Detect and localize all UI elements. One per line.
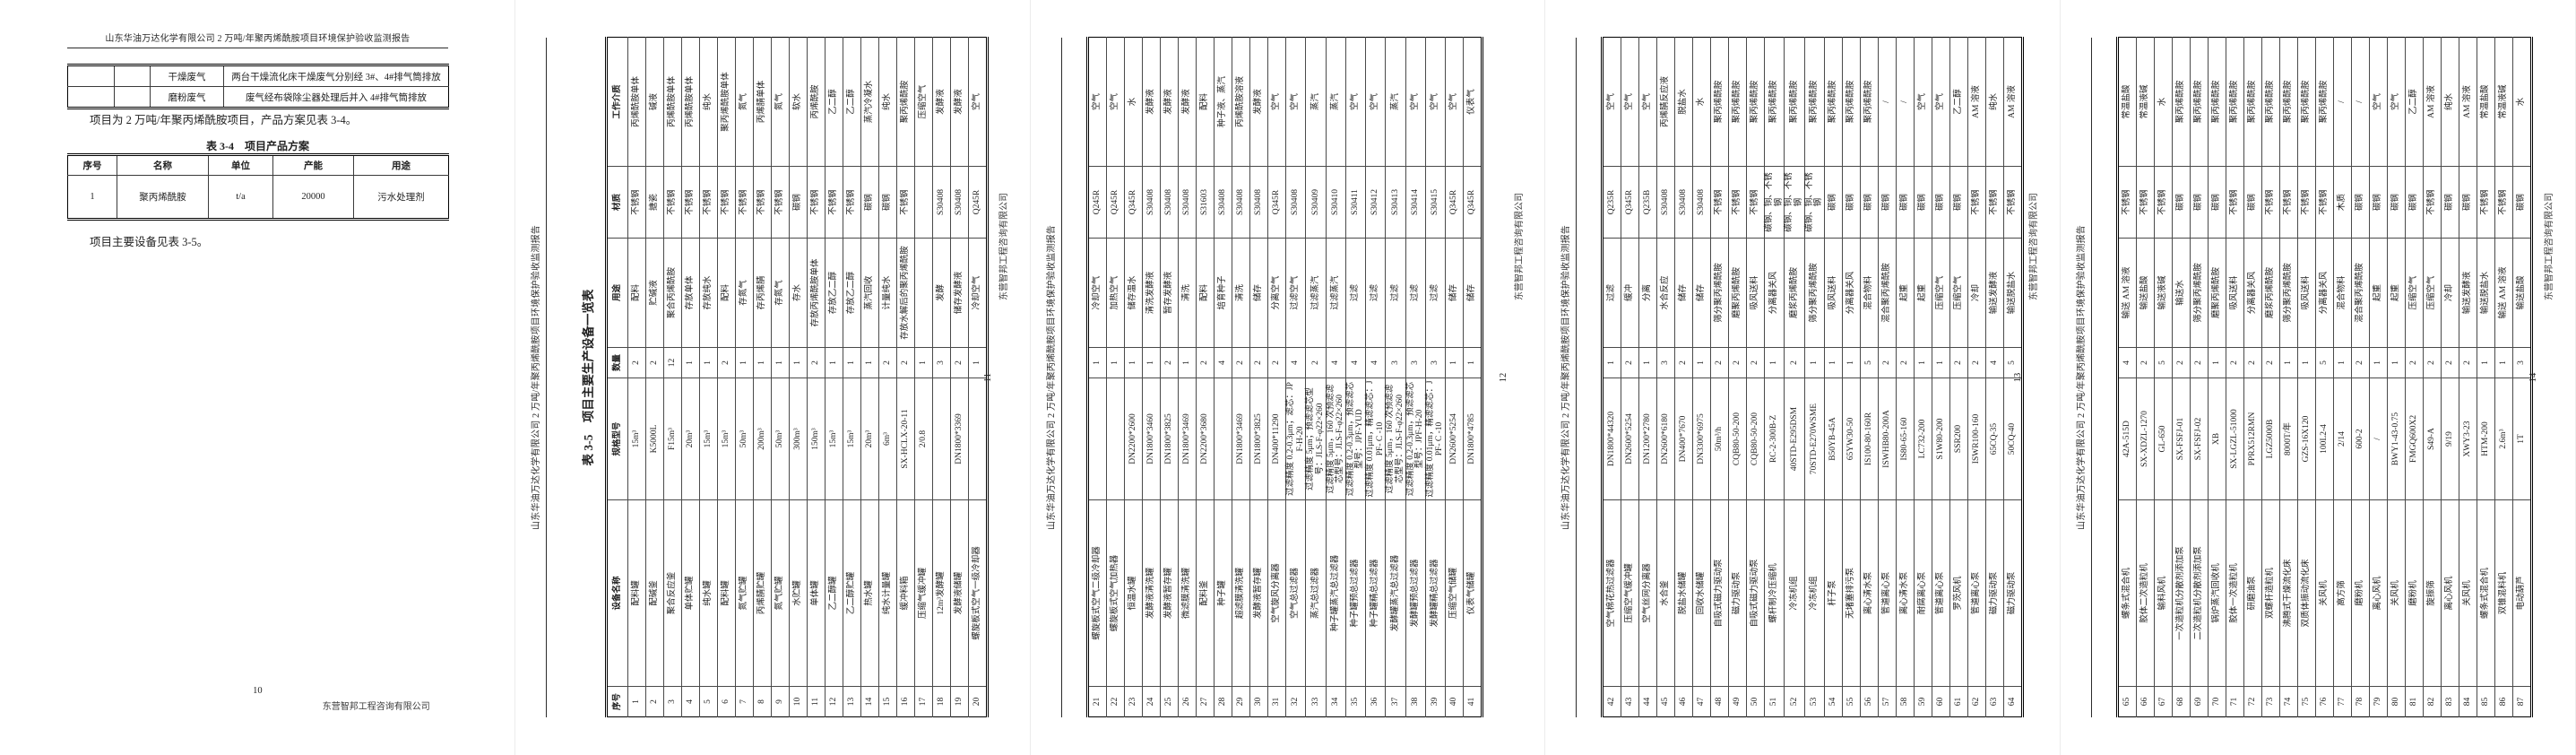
table-cell: 缓冲料箱: [896, 500, 914, 687]
table-cell: 碳钢: [878, 167, 896, 239]
table-cell: 乙二醇: [1950, 38, 1968, 167]
table-cell: 无堵塞排污泵: [1843, 500, 1861, 687]
table-cell: 1: [1639, 348, 1657, 378]
table-cell: 聚丙烯酰胺: [1785, 38, 1804, 167]
table-cell: 不锈钢: [771, 167, 789, 239]
table-cell: 单体贮罐: [681, 500, 699, 687]
table-cell: 2: [2442, 348, 2459, 378]
table-cell: 200m³: [753, 378, 771, 500]
table-cell: 空气: [1621, 38, 1639, 167]
table-cell: 两台干燥流化床干燥废气分别经 3#、4#排气筒排放: [224, 65, 449, 87]
table-row: 24发酵液清洗罐DN1800*34601清洗发酵液S30408发酵液: [1142, 38, 1160, 717]
table-cell: 74: [2280, 687, 2298, 717]
table-cell: 57: [1879, 687, 1897, 717]
table-cell: S30415: [1425, 167, 1445, 239]
table-cell: 丙烯酰胺: [807, 38, 825, 167]
table-cell: 空气: [1106, 38, 1124, 167]
table-cell: 空气: [2388, 38, 2406, 167]
table-cell: S30408: [1232, 167, 1249, 239]
table-cell: 37: [1385, 687, 1405, 717]
table-cell: 不锈钢: [2477, 167, 2495, 239]
table-cell: 15m³: [717, 378, 735, 500]
table-row: 4单体贮罐20m³1存放单体不锈钢丙烯酰胺单体: [681, 38, 699, 717]
table-row: 57管道离心泵ISWHB80-200A2混合聚丙烯酰胺碳钢/: [1879, 38, 1897, 717]
table-cell: 离心清水泵: [1897, 500, 1915, 687]
table-cell: 75: [2298, 687, 2316, 717]
table-cell: 氮气贮罐: [771, 500, 789, 687]
table-cell: 5: [2155, 348, 2173, 378]
table-cell: CQB80-50-200: [1747, 378, 1765, 500]
table-cell: 16: [896, 687, 914, 717]
table-cell: 不锈钢: [1711, 167, 1729, 239]
table-row: 66胶体二次造粒机SX-XDZL-12702输送盐酸不锈钢常温液碱: [2137, 38, 2155, 717]
table-cell: DN1800*3460: [1142, 378, 1160, 500]
table-cell: 存放水解后的聚丙烯酰胺: [896, 239, 914, 348]
table-row: 79离心风机/1起重碳钢空气: [2370, 38, 2388, 717]
table-row: 42空气棉花热过滤器DN1800*443201过滤Q235R空气: [1603, 38, 1621, 717]
table-cell: DN1800*3469: [1178, 378, 1196, 500]
table-row: 34种子罐蒸汽总过滤器过滤精度 5μm，160 次预滤滤芯型号：JLS-F-φ2…: [1326, 38, 1345, 717]
table-cell: 45: [1657, 687, 1675, 717]
consultant-company: 东营智邦工程咨询有限公司: [2541, 193, 2554, 300]
table-cell: GL-650: [2155, 378, 2173, 500]
table-row: 84关风机XWY3-232输送发酵液碳钢AM 溶液: [2459, 38, 2477, 717]
table-cell: PPRX512RMN: [2244, 378, 2262, 500]
table-cell: 发酵: [932, 239, 950, 348]
table-cell: S30408: [1160, 167, 1178, 239]
table-row: 1配料罐15m³2配料不锈钢丙烯酰胺单体: [627, 38, 645, 717]
table-cell: 碳钢: [2244, 167, 2262, 239]
table-row: 3聚合反应釜F15m³12聚合丙烯酰胺不锈钢丙烯酰胺单体: [663, 38, 681, 717]
table-cell: 碳钢: [1950, 167, 1968, 239]
table-cell: Q345R: [1463, 167, 1482, 239]
table-cell: 存放纯水: [699, 239, 717, 348]
table-cell: 24: [1142, 687, 1160, 717]
table-cell: 碳钢: [1932, 167, 1950, 239]
table-cell: 1: [771, 348, 789, 378]
table-cell: 缓冲: [1621, 239, 1639, 348]
table-cell: 蒸汽总过滤器: [1305, 500, 1325, 687]
table-cell: 螺旋板式空气二级冷却器: [1087, 500, 1106, 687]
table-cell: Q345R: [1124, 167, 1142, 239]
table-cell: 2: [1305, 348, 1325, 378]
table-cell: 1: [2495, 348, 2513, 378]
table-cell: 不锈钢: [2262, 167, 2280, 239]
table-cell: 2/14: [2334, 378, 2352, 500]
table-cell: 过滤精度 5μm，160 次预滤滤芯型号：JLS-F-φ22×260: [1326, 378, 1345, 500]
table-cell: DN1800*3825: [1160, 378, 1178, 500]
table-cell: 压缩空气: [1950, 239, 1968, 348]
table-cell: 常温盐酸: [2118, 38, 2137, 167]
table-cell: 发酵液清洗罐: [1142, 500, 1160, 687]
table-cell: 丙烯酰胺单体: [627, 38, 645, 167]
page-number: 12: [1498, 0, 1508, 755]
table-cell: 暂存发酵液: [1160, 239, 1178, 348]
table-cell: XWY3-23: [2459, 378, 2477, 500]
table-cell: 螺条式混合机: [2477, 500, 2495, 687]
table-cell: 3: [1405, 348, 1425, 378]
table-cell: 杆子泵: [1825, 500, 1843, 687]
table-cell: 2: [2406, 348, 2424, 378]
table-cell: 输料风机: [2155, 500, 2173, 687]
table-cell: 5: [1861, 348, 1879, 378]
table-cell: 1: [1825, 348, 1843, 378]
table-cell: 1: [627, 687, 645, 717]
table-row: 73双螺杆造粒机LGZ5000B2磨浆丙烯酰胺不锈钢聚丙烯酰胺: [2262, 38, 2280, 717]
table-cell: 10: [789, 687, 807, 717]
table-cell: 47: [1693, 687, 1711, 717]
table-cell: 氮气: [735, 38, 753, 167]
table-row: 86双锥混料机2.6m³1输送 AM 溶液不锈钢常温液碱: [2495, 38, 2513, 717]
table-cell: 聚丙烯酰胺: [2280, 38, 2298, 167]
table-cell: 混合物料: [1861, 239, 1879, 348]
table-cell: 1: [681, 348, 699, 378]
table-cell: 恒温水罐: [1124, 500, 1142, 687]
table-cell: 水: [1124, 38, 1142, 167]
table-cell: DN2600*5254: [1621, 378, 1639, 500]
table-cell: 空气: [1445, 38, 1463, 167]
table-cell: 70: [2209, 687, 2226, 717]
table-cell: 4: [1345, 348, 1365, 378]
table-cell: 不锈钢: [1986, 167, 2004, 239]
table-cell: 2: [1711, 348, 1729, 378]
table-cell: 碳钢、铜、不锈钢: [1785, 167, 1804, 239]
table-cell: XB: [2209, 378, 2226, 500]
table-row: 43压缩空气缓冲罐DN2600*52542缓冲Q345R空气: [1621, 38, 1639, 717]
table-cell: 62: [1968, 687, 1986, 717]
table-row: 39发酵罐精总过滤器过滤精度 0.01μm，精滤滤芯：JPF- C -103过滤…: [1425, 38, 1445, 717]
table-row: 干燥废气两台干燥流化床干燥废气分别经 3#、4#排气筒排放: [68, 65, 449, 87]
table-cell: HTM-200: [2477, 378, 2495, 500]
report-header: 山东华油万达化学有限公司 2 万吨/年聚丙烯酰胺项目环境保护验收监测报告: [1558, 38, 1577, 717]
table-cell: 3: [1657, 348, 1675, 378]
table-cell: 高方筛: [2334, 500, 2352, 687]
table-cell: 存放乙二醇: [825, 239, 843, 348]
table-cell: 29: [1232, 687, 1249, 717]
table-cell: 6m³: [878, 378, 896, 500]
table-cell: 冷却: [1968, 239, 1986, 348]
table-cell: 59: [1915, 687, 1932, 717]
table-cell: AM 溶液: [1968, 38, 1986, 167]
table-cell: 纯水: [699, 38, 717, 167]
table-cell: 38: [1405, 687, 1425, 717]
table-cell: S49-A: [2424, 378, 2442, 500]
table-cell: 7: [735, 687, 753, 717]
table-cell: 碳钢: [2388, 167, 2406, 239]
table-cell: 不锈钢: [2155, 167, 2173, 239]
table-cell: [1214, 378, 1232, 500]
table-cell: S31603: [1196, 167, 1214, 239]
table-cell: 水: [2155, 38, 2173, 167]
column-header: 单位: [209, 155, 273, 176]
column-header: 用途: [354, 155, 449, 176]
table-cell: 1: [753, 348, 771, 378]
table-cell: 不锈钢: [2137, 167, 2155, 239]
table-cell: 过滤精度 5μm；预滤滤芯型号：JLS-F-φ22×260: [1305, 378, 1325, 500]
table-cell: FMGQ600X2: [2406, 378, 2424, 500]
column-header: 工作介质: [606, 38, 627, 167]
table-cell: 压缩空气: [2406, 239, 2424, 348]
table-row: 59耐腐离心泵LC732-2001起重碳钢空气: [1915, 38, 1932, 717]
table-cell: 丙烯酰胺单体: [663, 38, 681, 167]
table-cell: [1106, 378, 1124, 500]
table-cell: 储存: [1445, 239, 1463, 348]
table-cell: 空气: [2370, 38, 2388, 167]
table-row: 77高方筛2/141混合物料木质/: [2334, 38, 2352, 717]
table-cell: 不锈钢: [2280, 167, 2298, 239]
table-cell: 1: [1445, 348, 1463, 378]
consultant-company: 东营智邦工程咨询有限公司: [1510, 193, 1524, 300]
table-cell: 分离空气: [1267, 239, 1285, 348]
table-row: 78磨粉机600-22混合聚丙烯酰胺碳钢/: [2352, 38, 2370, 717]
table-cell: 52: [1785, 687, 1804, 717]
table-row: 25发酵液暂存罐DN1800*38252暂存发酵液S30408发酵液: [1160, 38, 1178, 717]
table-cell: 1: [2477, 348, 2495, 378]
table-cell: S30414: [1405, 167, 1425, 239]
table-cell: SSR200: [1950, 378, 1968, 500]
table-cell: Q235B: [1639, 167, 1657, 239]
table-cell: 分离器关风: [1765, 239, 1785, 348]
table-cell: 磨聚丙烯酰胺: [1729, 239, 1747, 348]
table-cell: 2: [2262, 348, 2280, 378]
table-cell: 41: [1463, 687, 1482, 717]
table-cell: 空气: [1639, 38, 1657, 167]
table-cell: 螺条式混合机: [2118, 500, 2137, 687]
table-cell: 丙烯酰胺溶液: [1232, 38, 1249, 167]
consultant-company: 东营智邦工程咨询有限公司: [323, 699, 430, 712]
table-cell: [68, 87, 115, 108]
table-cell: 56: [1861, 687, 1879, 717]
table-cell: 聚丙烯酰胺: [1747, 38, 1765, 167]
table-cell: /: [2334, 38, 2352, 167]
table-cell: 乙二醇: [825, 38, 843, 167]
table-cell: 脱盐水: [1675, 38, 1693, 167]
table-cell: 1: [1142, 348, 1160, 378]
table-3-4-title: 表 3-4 项目产品方案: [67, 138, 448, 153]
table-row: 16缓冲料箱SX-HCLX-20-112存放水解后的聚丙烯酰胺不锈钢聚丙烯酰胺: [896, 38, 914, 717]
table-header-row: 序号设备名称规格型号数量用途材质工作介质: [606, 38, 627, 717]
table-cell: 分离: [1639, 239, 1657, 348]
table-cell: 混合物料: [2334, 239, 2352, 348]
table-cell: 发酵液: [1160, 38, 1178, 167]
table-cell: 废气经布袋除尘器处理后并入 4#排气筒排放: [224, 87, 449, 108]
table-cell: 磨浆丙烯酰胺: [1785, 239, 1804, 348]
table-cell: 66: [2137, 687, 2155, 717]
table-cell: 71: [2226, 687, 2244, 717]
table-cell: 过滤精度 0.01μm，精滤滤芯：JPF- C -10: [1365, 378, 1385, 500]
table-cell: 螺杆制冷压缩机: [1765, 500, 1785, 687]
table-cell: 发酵液暂存罐: [1160, 500, 1178, 687]
table-cell: 6: [717, 687, 735, 717]
table-cell: /: [1897, 38, 1915, 167]
table-cell: 空气旋风分离器: [1267, 500, 1285, 687]
table-cell: 9/19: [2442, 378, 2459, 500]
table-row: 76关风机100L2-45分离器关风不锈钢聚丙烯酰胺: [2316, 38, 2334, 717]
table-row: 磨粉废气废气经布袋除尘器处理后并入 4#排气筒排放: [68, 87, 449, 108]
table-cell: 储存: [1675, 239, 1693, 348]
table-cell: 39: [1425, 687, 1445, 717]
table-row: 85螺条式混合机HTM-2001输送脱盐水不锈钢常温盐酸: [2477, 38, 2495, 717]
table-cell: 冷却空气: [1087, 239, 1106, 348]
table-cell: 12: [825, 687, 843, 717]
table-cell: 1: [1106, 348, 1124, 378]
table-cell: 空气: [1932, 38, 1950, 167]
table-cell: 2: [950, 348, 968, 378]
table-cell: 聚丙烯酰胺: [2191, 38, 2209, 167]
table-cell: DN1800*3469: [1232, 378, 1249, 500]
table-cell: 回收水储罐: [1693, 500, 1711, 687]
table-cell: 存放乙二醇: [843, 239, 860, 348]
table-row: 58离心清水泵IS80-65-1602起重碳钢/: [1897, 38, 1915, 717]
table-row: 36种子罐精总过滤器过滤精度 0.01μm，精滤滤芯：JPF- C -104过滤…: [1365, 38, 1385, 717]
table-cell: RC-2-300B-Z: [1765, 378, 1785, 500]
table-row: 80关风机BWY1-43-0.751起重碳钢空气: [2388, 38, 2406, 717]
table-cell: 常温液碱: [2495, 38, 2513, 167]
table-cell: 离心清水泵: [1861, 500, 1879, 687]
table-row: 44空气丝网分离器DN1200*27801分离Q235B空气: [1639, 38, 1657, 717]
table-row: 48自吸式磁力驱动泵50m³/h2筛分聚丙烯酰胺不锈钢聚丙烯酰胺: [1711, 38, 1729, 717]
table-cell: 53: [1804, 687, 1824, 717]
table-row: 75双质体振动流化床GZS-16X1201吸风送料不锈钢聚丙烯酰胺: [2298, 38, 2316, 717]
table-cell: 42: [1603, 687, 1621, 717]
table-cell: SX-FSFJ-01: [2173, 378, 2191, 500]
table-cell: 发酵罐精总过滤器: [1425, 500, 1445, 687]
table-cell: 4: [1214, 348, 1232, 378]
table-cell: 碳钢: [2352, 167, 2370, 239]
table-cell: /: [2352, 38, 2370, 167]
table-cell: AM 溶液: [2424, 38, 2442, 167]
table-cell: 吸风送料: [2226, 239, 2244, 348]
table-cell: 发酵液: [1249, 38, 1267, 167]
table-cell: 1: [1693, 348, 1711, 378]
table-cell: 聚丙烯酰胺: [117, 176, 209, 220]
table-cell: 种子罐蒸汽总过滤器: [1326, 500, 1345, 687]
table-cell: 过滤精度 0.2-0.3μm，预滤滤芯型号：JPF-YUD: [1345, 378, 1365, 500]
table-cell: 蒸汽冷凝水: [860, 38, 878, 167]
table-cell: 2: [717, 348, 735, 378]
table-cell: 蒸汽回收: [860, 239, 878, 348]
table-cell: 聚丙烯酰胺: [2316, 38, 2334, 167]
table-row: 74沸腾式干燥流化床8000T/年1筛分聚丙烯酰胺不锈钢聚丙烯酰胺: [2280, 38, 2298, 717]
table-row: 54杆子泵B50YB-45A1吸风送料碳钢聚丙烯酰胺: [1825, 38, 1843, 717]
table-cell: 碳钢: [2191, 167, 2209, 239]
equipment-table: 42空气棉花热过滤器DN1800*443201过滤Q235R空气43压缩空气缓冲…: [1601, 37, 2024, 717]
table-cell: 蒸汽: [1385, 38, 1405, 167]
table-cell: 2: [2244, 348, 2262, 378]
table-cell: 43: [1621, 687, 1639, 717]
table-cell: 压缩空气: [2424, 239, 2442, 348]
table-cell: 35: [1345, 687, 1365, 717]
table-cell: 罗茨风机: [1950, 500, 1968, 687]
table-cell: S30408: [1178, 167, 1196, 239]
table-cell: 81: [2406, 687, 2424, 717]
table-cell: 30: [1249, 687, 1267, 717]
table-row: 40压缩空气储罐DN2600*52541储存Q345R空气: [1445, 38, 1463, 717]
table-cell: 冷冻机组: [1804, 500, 1824, 687]
table-cell: 15m³: [699, 378, 717, 500]
table-cell: DN400*7670: [1675, 378, 1693, 500]
table-cell: 筛分聚丙烯酰胺: [1804, 239, 1824, 348]
table-cell: 聚丙烯酰胺: [1729, 38, 1747, 167]
table-cell: 1: [1915, 348, 1932, 378]
table-row: 45水合釜DN2600*61803水合反应S30408丙烯腈反应液: [1657, 38, 1675, 717]
table-row: 12乙二醇罐15m³1存放乙二醇不锈钢乙二醇: [825, 38, 843, 717]
table-cell: 2: [2459, 348, 2477, 378]
table-cell: 乙二醇贮罐: [843, 500, 860, 687]
table-cell: 1: [2209, 348, 2226, 378]
table-cell: 过滤精度 0.2-0.3μm，预滤滤芯型号：JPF-H-20: [1405, 378, 1425, 500]
table-cell: F15m³: [663, 378, 681, 500]
table-cell: 聚丙烯酰胺: [1711, 38, 1729, 167]
table-cell: 过滤蒸汽: [1305, 239, 1325, 348]
table-cell: BWY1-43-0.75: [2388, 378, 2406, 500]
table-cell: 1: [1178, 348, 1196, 378]
column-header: 产能: [273, 155, 354, 176]
table-row: 47回收水储罐DN3300*69751储存S30408水: [1693, 38, 1711, 717]
table-cell: 污水处理剂: [354, 176, 449, 220]
table-cell: 纯水: [1986, 38, 2004, 167]
table-cell: 2: [1232, 348, 1249, 378]
table-cell: 磨粉废气: [151, 87, 224, 108]
rotated-landscape-content: 山东华油万达化学有限公司 2 万吨/年聚丙烯酰胺项目环境保护验收监测报告 42空…: [1545, 0, 2061, 755]
table-cell: 不锈钢: [1747, 167, 1765, 239]
table-cell: 输送液碱: [2155, 239, 2173, 348]
table-cell: 2: [1267, 348, 1285, 378]
table-row: 71胶体一次造粒机SX-LGZL-510002吸风送料不锈钢聚丙烯酰胺: [2226, 38, 2244, 717]
table-cell: 不锈钢: [807, 167, 825, 239]
table-cell: 聚丙烯酰胺: [2209, 38, 2226, 167]
table-cell: S30408: [932, 167, 950, 239]
table-cell: 65CQ-35: [1986, 378, 2004, 500]
table-cell: 不锈钢: [896, 167, 914, 239]
table-cell: 乙二醇: [2406, 38, 2424, 167]
table-cell: Q345R: [1445, 167, 1463, 239]
table-cell: 67: [2155, 687, 2173, 717]
table-cell: 2: [1621, 348, 1639, 378]
report-header: 山东华油万达化学有限公司 2 万吨/年聚丙烯酰胺项目环境保护验收监测报告: [528, 38, 547, 717]
table-cell: 碳钢: [1843, 167, 1861, 239]
table-cell: 压缩气缓冲罐: [914, 500, 932, 687]
paragraph-product-plan: 项目为 2 万吨/年聚丙烯酰胺项目，产品方案见表 3-4。: [67, 113, 448, 127]
table-cell: 不锈钢: [843, 167, 860, 239]
table-cell: S30408: [1214, 167, 1232, 239]
table-cell: 15m³: [627, 378, 645, 500]
table-cell: 关风机: [2316, 500, 2334, 687]
table-cell: 不锈钢: [681, 167, 699, 239]
table-row: 6配料罐15m³2配料不锈钢聚丙烯酰胺单体: [717, 38, 735, 717]
table-cell: S30408: [950, 167, 968, 239]
table-cell: 碳钢: [789, 167, 807, 239]
table-cell: 4: [2118, 348, 2137, 378]
table-cell: 压缩空气缓冲罐: [1621, 500, 1639, 687]
table-cell: 脱盐水储罐: [1675, 500, 1693, 687]
page-number: 11: [983, 0, 993, 755]
document-viewer: 山东华油万达化学有限公司 2 万吨/年聚丙烯酰胺项目环境保护验收监测报告 干燥废…: [0, 0, 2576, 755]
table-cell: 沸腾式干燥流化床: [2280, 500, 2298, 687]
table-cell: 不锈钢: [699, 167, 717, 239]
table-row: 7氮气贮罐50m³1存氮气不锈钢氮气: [735, 38, 753, 717]
table-cell: 44: [1639, 687, 1657, 717]
table-cell: 8000T/年: [2280, 378, 2298, 500]
table-row: 19发酵液储罐DN1800*33692储存发酵液S30408发酵液: [950, 38, 968, 717]
consultant-company: 东营智邦工程咨询有限公司: [2026, 193, 2039, 300]
rotated-landscape-content: 山东华油万达化学有限公司 2 万吨/年聚丙烯酰胺项目环境保护验收监测报告 65螺…: [2061, 0, 2576, 755]
table-cell: [1087, 378, 1106, 500]
table-cell: 筛分聚丙烯酰胺: [2280, 239, 2298, 348]
report-header: 山东华油万达化学有限公司 2 万吨/年聚丙烯酰胺项目环境保护验收监测报告: [1043, 38, 1062, 717]
table-cell: 研磨油泵: [2244, 500, 2262, 687]
table-row: 56离心清水泵IS100-80-160R5混合物料碳钢聚丙烯酰胺: [1861, 38, 1879, 717]
